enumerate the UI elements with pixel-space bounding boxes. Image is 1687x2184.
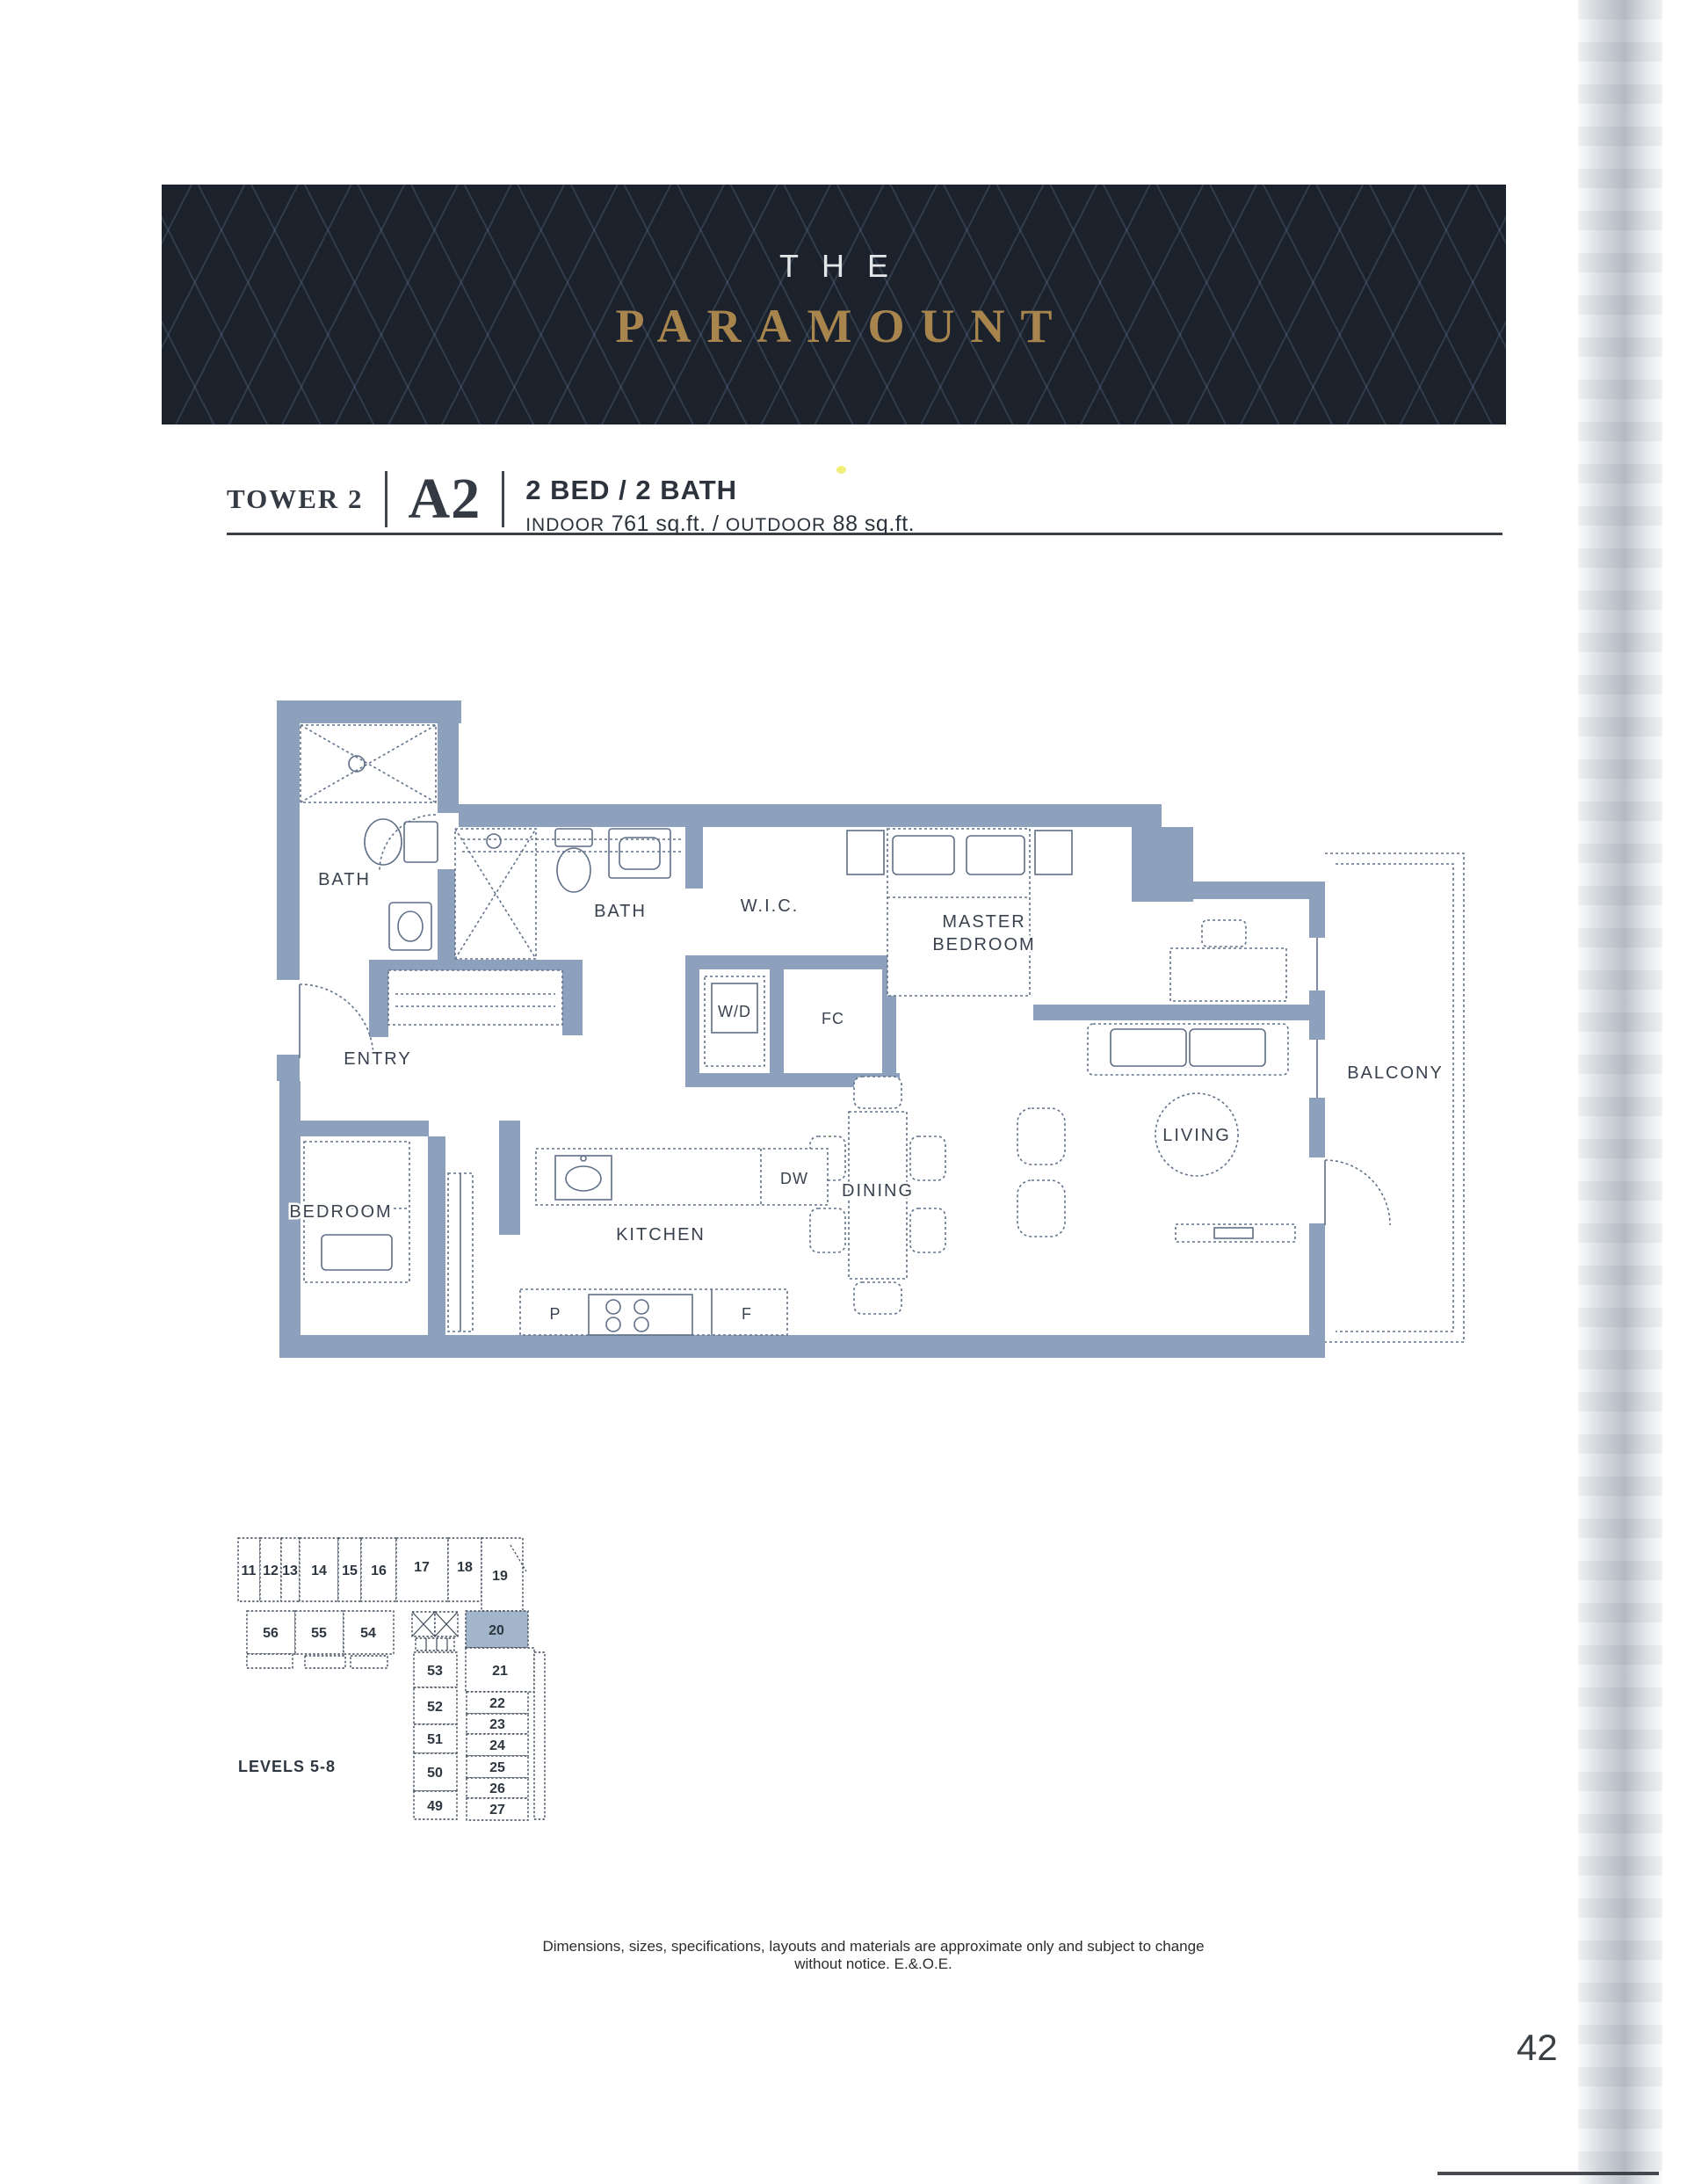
room-label-wd: W/D <box>718 1003 751 1020</box>
room-label-bedroom: BEDROOM <box>289 1202 392 1222</box>
sofa <box>1088 1024 1288 1075</box>
room-label-master-line2: BEDROOM <box>932 935 1035 954</box>
keyplan-unit: 15 <box>342 1564 358 1578</box>
bath-main-fixtures <box>455 829 670 959</box>
keyplan-unit: 27 <box>489 1803 505 1818</box>
keyplan-unit: 23 <box>489 1717 505 1732</box>
room-label-bath-ensuite: BATH <box>318 870 371 889</box>
tower-label: TOWER 2 <box>227 483 364 515</box>
unit-type: 2 BED / 2 BATH <box>525 475 915 506</box>
keyplan-unit: 55 <box>311 1626 327 1641</box>
label-fridge: F <box>742 1305 752 1323</box>
banner-pre-title: THE <box>757 248 911 285</box>
keyplan-drawing: 11 12 13 14 15 16 17 18 19 56 55 54 20 5… <box>231 1520 547 1872</box>
brand-banner: THE PARAMOUNT <box>162 185 1506 424</box>
keyplan-unit: 19 <box>492 1569 508 1584</box>
washer-dryer-unit <box>705 976 764 1066</box>
entry-door-swing <box>300 984 373 1058</box>
room-label-wic: W.I.C. <box>741 896 799 916</box>
keyplan-unit: 54 <box>360 1626 376 1641</box>
scan-bottom-edge-line <box>1437 2172 1659 2175</box>
tv-console <box>1176 1224 1295 1242</box>
desk <box>1170 920 1286 1001</box>
page-number: 42 <box>1517 2027 1558 2069</box>
indoor-label: INDOOR <box>525 515 605 535</box>
room-label-living: LIVING <box>1162 1126 1231 1145</box>
unit-code: A2 <box>409 473 481 526</box>
room-label-balcony: BALCONY <box>1347 1063 1444 1083</box>
unit-area-line: INDOOR 761 sq.ft. / OUTDOOR 88 sq.ft. <box>525 512 915 537</box>
banner-title: PARAMOUNT <box>600 299 1068 353</box>
outdoor-label: OUTDOOR <box>726 515 826 535</box>
keyplan-unit: 17 <box>414 1560 430 1575</box>
room-label-entry: ENTRY <box>344 1049 411 1069</box>
indoor-value: 761 sq.ft. <box>612 512 706 536</box>
bath-ensuite-fixtures <box>300 725 438 950</box>
keyplan-unit: 51 <box>427 1732 443 1747</box>
unit-header: TOWER 2 A2 2 BED / 2 BATH INDOOR 761 sq.… <box>227 469 1502 535</box>
bedroom-bed <box>304 1142 473 1331</box>
header-divider-1 <box>385 471 387 527</box>
room-label-bath-main: BATH <box>594 902 647 921</box>
scan-edge-strip <box>1578 0 1662 2184</box>
scan-speck-yellow-1 <box>836 466 846 474</box>
room-label-dining: DINING <box>842 1181 914 1201</box>
keyplan-unit: 53 <box>427 1664 443 1679</box>
keyplan-unit: 50 <box>427 1766 443 1781</box>
keyplan-unit: 22 <box>489 1696 505 1711</box>
keyplan-unit: 24 <box>489 1738 505 1753</box>
keyplan-levels-label: LEVELS 5-8 <box>238 1758 336 1775</box>
keyplan-unit: 52 <box>427 1700 443 1715</box>
unit-summary: 2 BED / 2 BATH INDOOR 761 sq.ft. / OUTDO… <box>525 475 915 537</box>
area-separator: / <box>713 512 719 536</box>
hall-closet <box>388 970 562 1025</box>
keyplan-unit: 56 <box>263 1626 279 1641</box>
keyplan-highlighted-unit: 20 <box>489 1623 504 1638</box>
keyplan-unit: 49 <box>427 1799 443 1814</box>
floorplan-drawing: BATH BATH W.I.C. MASTER BEDROOM W/D FC E… <box>272 681 1467 1375</box>
balcony-outline <box>1325 853 1464 1342</box>
keyplan-unit: 18 <box>457 1560 473 1575</box>
keyplan-unit: 13 <box>282 1564 298 1578</box>
brochure-page: THE PARAMOUNT TOWER 2 A2 2 BED / 2 BATH … <box>0 0 1687 2184</box>
disclaimer-text: Dimensions, sizes, specifications, layou… <box>522 1938 1225 1973</box>
keyplan-unit: 26 <box>489 1781 505 1796</box>
label-pantry: P <box>549 1305 561 1323</box>
label-dishwasher: DW <box>780 1170 808 1187</box>
header-divider-2 <box>502 471 504 527</box>
keyplan-unit: 25 <box>489 1760 505 1775</box>
keyplan-unit: 21 <box>492 1664 508 1679</box>
accent-chairs <box>1017 1108 1065 1237</box>
room-label-master-line1: MASTER <box>942 912 1025 932</box>
outdoor-value: 88 sq.ft. <box>833 512 915 536</box>
keyplan-unit: 16 <box>371 1564 387 1578</box>
room-label-kitchen: KITCHEN <box>616 1225 706 1244</box>
room-label-fc: FC <box>822 1010 844 1027</box>
keyplan-unit: 11 <box>242 1564 257 1578</box>
keyplan-unit: 14 <box>311 1564 327 1578</box>
keyplan-unit: 12 <box>263 1564 279 1578</box>
